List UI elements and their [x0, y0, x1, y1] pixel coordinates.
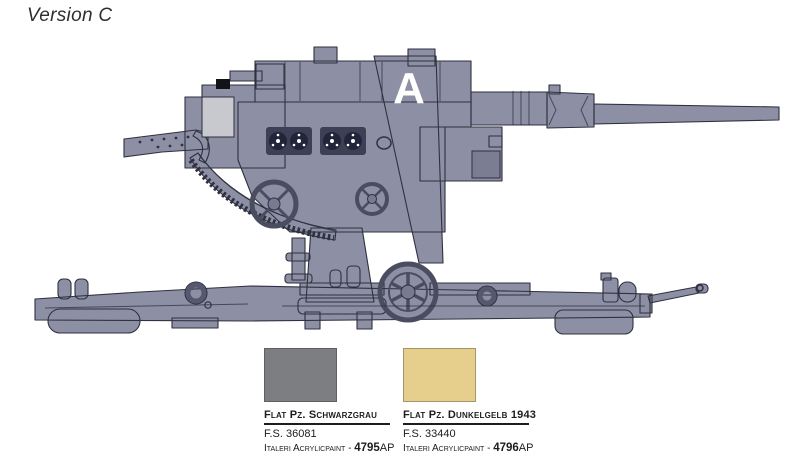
- paint-fs-code: F.S. 33440: [403, 428, 529, 440]
- knob: [216, 79, 230, 89]
- paint-brand: Italeri Acrylicpaint -: [403, 443, 490, 454]
- paint-brand-line: Italeri Acrylicpaint - 4796AP: [403, 442, 529, 454]
- data-plate: [202, 97, 234, 137]
- bogie-wheel: [380, 264, 436, 320]
- paint-fs-code: F.S. 36081: [264, 428, 390, 440]
- paint-brand: Italeri Acrylicpaint -: [264, 443, 351, 454]
- paint-swatch-tan: [403, 348, 476, 402]
- paint-legend-schwarzgrau: Flat Pz. Schwarzgrau F.S. 36081 Italeri …: [264, 348, 390, 454]
- paint-code: 4796: [493, 442, 519, 454]
- paint-code-suffix: AP: [380, 442, 395, 454]
- paint-legend-dunkelgelb: Flat Pz. Dunkelgelb 1943 F.S. 33440 Ital…: [403, 348, 529, 454]
- breech-plate: [472, 151, 500, 178]
- paint-name: Flat Pz. Schwarzgrau: [264, 409, 390, 425]
- paint-brand-line: Italeri Acrylicpaint - 4795AP: [264, 442, 390, 454]
- gun-illustration: A: [0, 0, 800, 467]
- instruction-sheet: Version C: [0, 0, 800, 467]
- paint-code-suffix: AP: [519, 442, 534, 454]
- paint-swatch-gray: [264, 348, 337, 402]
- paint-code: 4795: [354, 442, 380, 454]
- marking-letter: A: [393, 64, 425, 113]
- paint-name: Flat Pz. Dunkelgelb 1943: [403, 409, 529, 425]
